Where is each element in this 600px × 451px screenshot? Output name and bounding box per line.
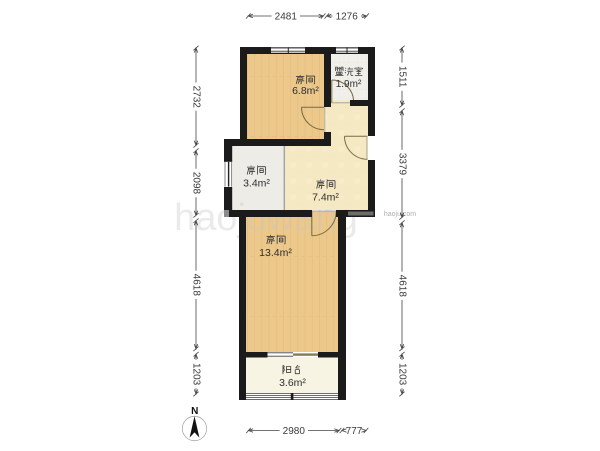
svg-text:4618: 4618 — [397, 275, 408, 298]
svg-text:3.4m²: 3.4m² — [243, 178, 270, 190]
svg-text:1203: 1203 — [191, 363, 202, 386]
svg-text:13.4m²: 13.4m² — [259, 247, 292, 259]
svg-text:1511: 1511 — [397, 66, 408, 88]
svg-text:1276: 1276 — [336, 12, 359, 23]
svg-text:3379: 3379 — [397, 153, 408, 176]
svg-text:3.6m²: 3.6m² — [279, 377, 306, 389]
svg-text:6.8m²: 6.8m² — [292, 85, 319, 97]
svg-text:1203: 1203 — [397, 363, 408, 386]
svg-text:1.9m²: 1.9m² — [336, 79, 362, 90]
svg-text:2481: 2481 — [275, 12, 298, 23]
svg-text:haoju.com: haoju.com — [384, 211, 416, 218]
svg-text:N: N — [191, 406, 198, 417]
svg-text:777: 777 — [346, 426, 363, 437]
svg-text:2098: 2098 — [191, 172, 202, 195]
svg-text:2980: 2980 — [283, 426, 306, 437]
svg-text:4618: 4618 — [191, 274, 202, 297]
svg-text:2732: 2732 — [191, 86, 202, 109]
svg-text:7.4m²: 7.4m² — [312, 192, 339, 204]
